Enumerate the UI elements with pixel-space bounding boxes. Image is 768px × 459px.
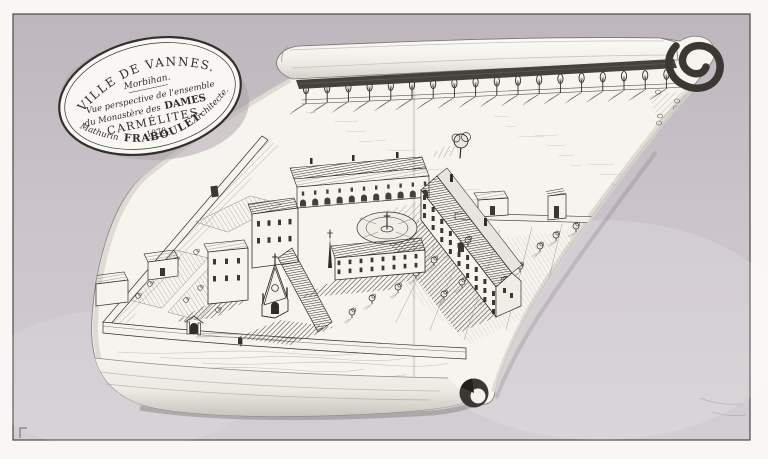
- chimney-2: [484, 218, 487, 226]
- scroll-bottom-curl: [460, 379, 489, 408]
- cross-wall-gatehouse: [545, 188, 566, 220]
- scroll-drawing-canvas: VILLE DE VANNES. Morbihan. Vue perspecti…: [0, 0, 768, 459]
- chimney: [450, 174, 453, 182]
- archival-photograph: VILLE DE VANNES. Morbihan. Vue perspecti…: [0, 0, 768, 459]
- chapel-portal: [271, 302, 279, 314]
